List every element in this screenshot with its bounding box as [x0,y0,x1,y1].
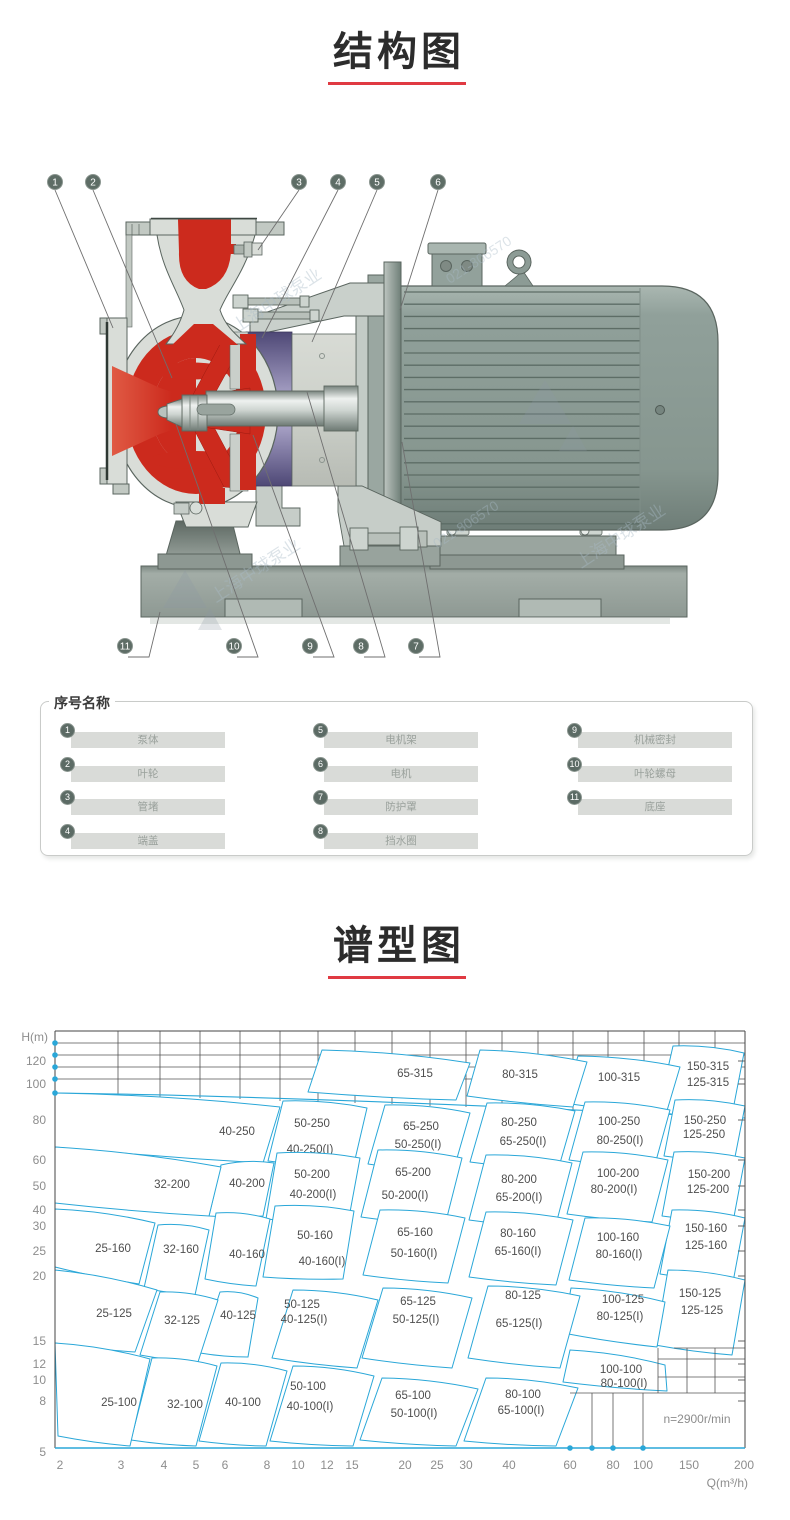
svg-text:50-250: 50-250 [294,1118,330,1130]
svg-text:100: 100 [633,1458,653,1472]
svg-text:50-160: 50-160 [297,1230,333,1242]
svg-text:125-250: 125-250 [683,1129,725,1141]
svg-text:150-315: 150-315 [687,1061,729,1073]
svg-text:20: 20 [398,1458,412,1472]
svg-text:30: 30 [33,1219,47,1233]
svg-text:65-160(I): 65-160(I) [495,1246,542,1258]
svg-text:65-160: 65-160 [397,1227,433,1239]
svg-text:32-100: 32-100 [167,1399,203,1411]
svg-text:80-160: 80-160 [500,1228,536,1240]
svg-text:15: 15 [33,1334,47,1348]
svg-text:40-200: 40-200 [229,1178,265,1190]
svg-text:150: 150 [679,1458,699,1472]
svg-text:50-100: 50-100 [290,1381,326,1393]
svg-text:65-100(I): 65-100(I) [498,1405,545,1417]
svg-text:50-200: 50-200 [294,1169,330,1181]
svg-text:100-100: 100-100 [600,1364,642,1376]
svg-text:80-200: 80-200 [501,1174,537,1186]
svg-text:80-315: 80-315 [502,1069,538,1081]
svg-text:80-100: 80-100 [505,1389,541,1401]
svg-text:65-200: 65-200 [395,1167,431,1179]
svg-text:125-200: 125-200 [687,1184,729,1196]
svg-text:25: 25 [33,1244,47,1258]
svg-text:30: 30 [459,1458,473,1472]
svg-text:150-160: 150-160 [685,1223,727,1235]
svg-text:n=2900r/min: n=2900r/min [663,1412,730,1426]
svg-text:7: 7 [413,642,419,653]
svg-text:200: 200 [734,1458,754,1472]
svg-text:50: 50 [33,1179,47,1193]
svg-text:120: 120 [26,1054,46,1068]
svg-text:3: 3 [118,1458,125,1472]
svg-text:40-200(I): 40-200(I) [290,1189,337,1201]
svg-text:80-200(I): 80-200(I) [591,1184,638,1196]
svg-text:32-160: 32-160 [163,1244,199,1256]
svg-text:65-315: 65-315 [397,1068,433,1080]
svg-text:150-250: 150-250 [684,1115,726,1127]
svg-text:5: 5 [193,1458,200,1472]
svg-text:100-160: 100-160 [597,1232,639,1244]
svg-text:40: 40 [502,1458,516,1472]
svg-text:3: 3 [296,178,302,189]
svg-text:H(m): H(m) [21,1030,48,1044]
svg-text:2: 2 [57,1458,64,1472]
svg-text:8: 8 [264,1458,271,1472]
svg-text:65-250(I): 65-250(I) [500,1136,547,1148]
svg-text:40-125(I): 40-125(I) [281,1314,328,1326]
svg-text:12: 12 [320,1458,334,1472]
svg-text:80-100(I): 80-100(I) [601,1378,648,1390]
svg-text:2: 2 [90,178,96,189]
svg-text:50-125: 50-125 [284,1299,320,1311]
svg-text:80-250(I): 80-250(I) [597,1135,644,1147]
svg-text:125-315: 125-315 [687,1077,729,1089]
svg-text:8: 8 [39,1394,46,1408]
svg-text:80-160(I): 80-160(I) [596,1249,643,1261]
svg-text:40-125: 40-125 [220,1310,256,1322]
svg-text:125-125: 125-125 [681,1305,723,1317]
svg-text:10: 10 [291,1458,305,1472]
svg-text:40-100(I): 40-100(I) [287,1401,334,1413]
svg-text:5: 5 [39,1445,46,1459]
svg-text:80-125: 80-125 [505,1290,541,1302]
svg-text:12: 12 [33,1357,47,1371]
svg-text:9: 9 [307,642,313,653]
svg-text:6: 6 [222,1458,229,1472]
svg-text:100: 100 [26,1077,46,1091]
svg-text:40: 40 [33,1203,47,1217]
svg-text:Q(m³/h): Q(m³/h) [707,1476,748,1490]
svg-text:50-125(I): 50-125(I) [393,1314,440,1326]
svg-text:80-250: 80-250 [501,1117,537,1129]
svg-text:50-250(I): 50-250(I) [395,1139,442,1151]
svg-text:32-125: 32-125 [164,1315,200,1327]
svg-text:25-125: 25-125 [96,1308,132,1320]
svg-text:25-100: 25-100 [101,1397,137,1409]
svg-text:1: 1 [52,178,58,189]
svg-text:50-160(I): 50-160(I) [391,1248,438,1260]
svg-text:80: 80 [606,1458,620,1472]
svg-text:20: 20 [33,1269,47,1283]
svg-text:100-125: 100-125 [602,1294,644,1306]
svg-text:11: 11 [120,642,131,653]
svg-text:25-160: 25-160 [95,1243,131,1255]
svg-text:10: 10 [228,642,240,653]
svg-text:32-200: 32-200 [154,1179,190,1191]
svg-text:100-200: 100-200 [597,1168,639,1180]
svg-text:60: 60 [563,1458,577,1472]
svg-text:40-100: 40-100 [225,1397,261,1409]
svg-text:15: 15 [345,1458,359,1472]
svg-text:100-250: 100-250 [598,1116,640,1128]
svg-text:10: 10 [33,1373,47,1387]
svg-text:50-100(I): 50-100(I) [391,1408,438,1420]
svg-text:40-250: 40-250 [219,1126,255,1138]
svg-text:125-160: 125-160 [685,1240,727,1252]
svg-text:80: 80 [33,1113,47,1127]
svg-text:65-200(I): 65-200(I) [496,1192,543,1204]
svg-text:150-200: 150-200 [688,1169,730,1181]
svg-text:65-250: 65-250 [403,1121,439,1133]
svg-text:25: 25 [430,1458,444,1472]
svg-text:8: 8 [358,642,364,653]
svg-text:40-160(I): 40-160(I) [299,1256,346,1268]
svg-text:40-160: 40-160 [229,1249,265,1261]
svg-text:150-125: 150-125 [679,1288,721,1300]
svg-text:100-315: 100-315 [598,1072,640,1084]
svg-text:50-200(I): 50-200(I) [382,1190,429,1202]
svg-text:4: 4 [161,1458,168,1472]
svg-text:4: 4 [335,178,341,189]
svg-text:65-125: 65-125 [400,1296,436,1308]
svg-text:65-100: 65-100 [395,1390,431,1402]
svg-text:6: 6 [435,178,441,189]
svg-text:5: 5 [374,178,380,189]
svg-text:80-125(I): 80-125(I) [597,1311,644,1323]
svg-text:65-125(I): 65-125(I) [496,1318,543,1330]
svg-text:60: 60 [33,1153,47,1167]
